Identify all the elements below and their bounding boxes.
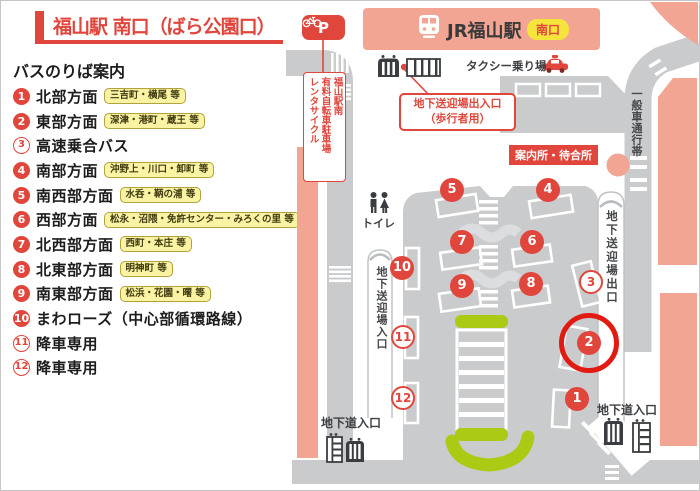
underpass-gate-line2: （歩行者用）	[401, 112, 514, 127]
building-circle	[607, 154, 630, 177]
parking-label-column: レンタサイクル	[307, 77, 319, 153]
map-stop-12: 12	[391, 386, 415, 410]
info-office-label: 案内所・待合所	[509, 145, 598, 165]
map-stop-7: 7	[450, 230, 474, 254]
underpass-gate-line1: 地下送迎場出入口	[401, 97, 514, 112]
bicycle-parking-badge: P	[302, 15, 345, 40]
escalator-icon-bottom-left	[346, 438, 364, 462]
parking-label: 福山駅南有料自転車駐車場レンタサイクル	[307, 77, 343, 153]
stairs-icon-bottom-left	[327, 433, 342, 462]
station-name: JR福山駅	[447, 17, 522, 43]
ramp-entrance-label: 地下送迎場入口	[373, 266, 389, 350]
map-stop-4: 4	[536, 178, 560, 202]
map-stop-1: 1	[565, 387, 589, 411]
underground-entrance-left-label: 地下道入口	[321, 414, 381, 431]
escalator-icon-bottom-right	[604, 418, 623, 445]
parking-label-column: 福山駅南	[331, 77, 343, 153]
underground-entrance-right-label: 地下道入口	[597, 401, 657, 418]
ramp-exit-label: 地下送迎場出口	[604, 210, 620, 305]
map-stop-2: 2	[577, 331, 601, 355]
general-lane-label: 一般車通行帯	[628, 88, 644, 157]
bicycle-parking-label-box: 福山駅南有料自転車駐車場レンタサイクル	[303, 72, 346, 182]
map-stop-10: 10	[390, 256, 414, 280]
taxi-stand-label: タクシー乗り場	[466, 58, 547, 74]
toilet-label: トイレ	[362, 215, 395, 231]
map-stop-8: 8	[519, 272, 543, 296]
stairs-icon-bottom-right	[633, 419, 650, 452]
stairs-icon-top	[407, 59, 440, 76]
map-stop-11: 11	[391, 325, 415, 349]
bus-terminal-guide: 福山駅 南口（ばら公園口） バスのりば案内 1北部方面三吉町・横尾 等2東部方面…	[0, 0, 700, 491]
south-exit-badge: 南口	[527, 19, 569, 40]
map-stop-5: 5	[440, 178, 464, 202]
escalator-icon-top	[378, 55, 399, 77]
underpass-gate-label: 地下送迎場出入口 （歩行者用）	[399, 93, 516, 131]
parking-label-column: 有料自転車駐車場	[319, 77, 331, 153]
restroom-icon	[371, 192, 390, 213]
bicycle-icon	[302, 15, 322, 28]
map-stop-9: 9	[450, 274, 474, 298]
map-stop-3: 3	[579, 270, 603, 294]
map-stop-6: 6	[520, 230, 544, 254]
